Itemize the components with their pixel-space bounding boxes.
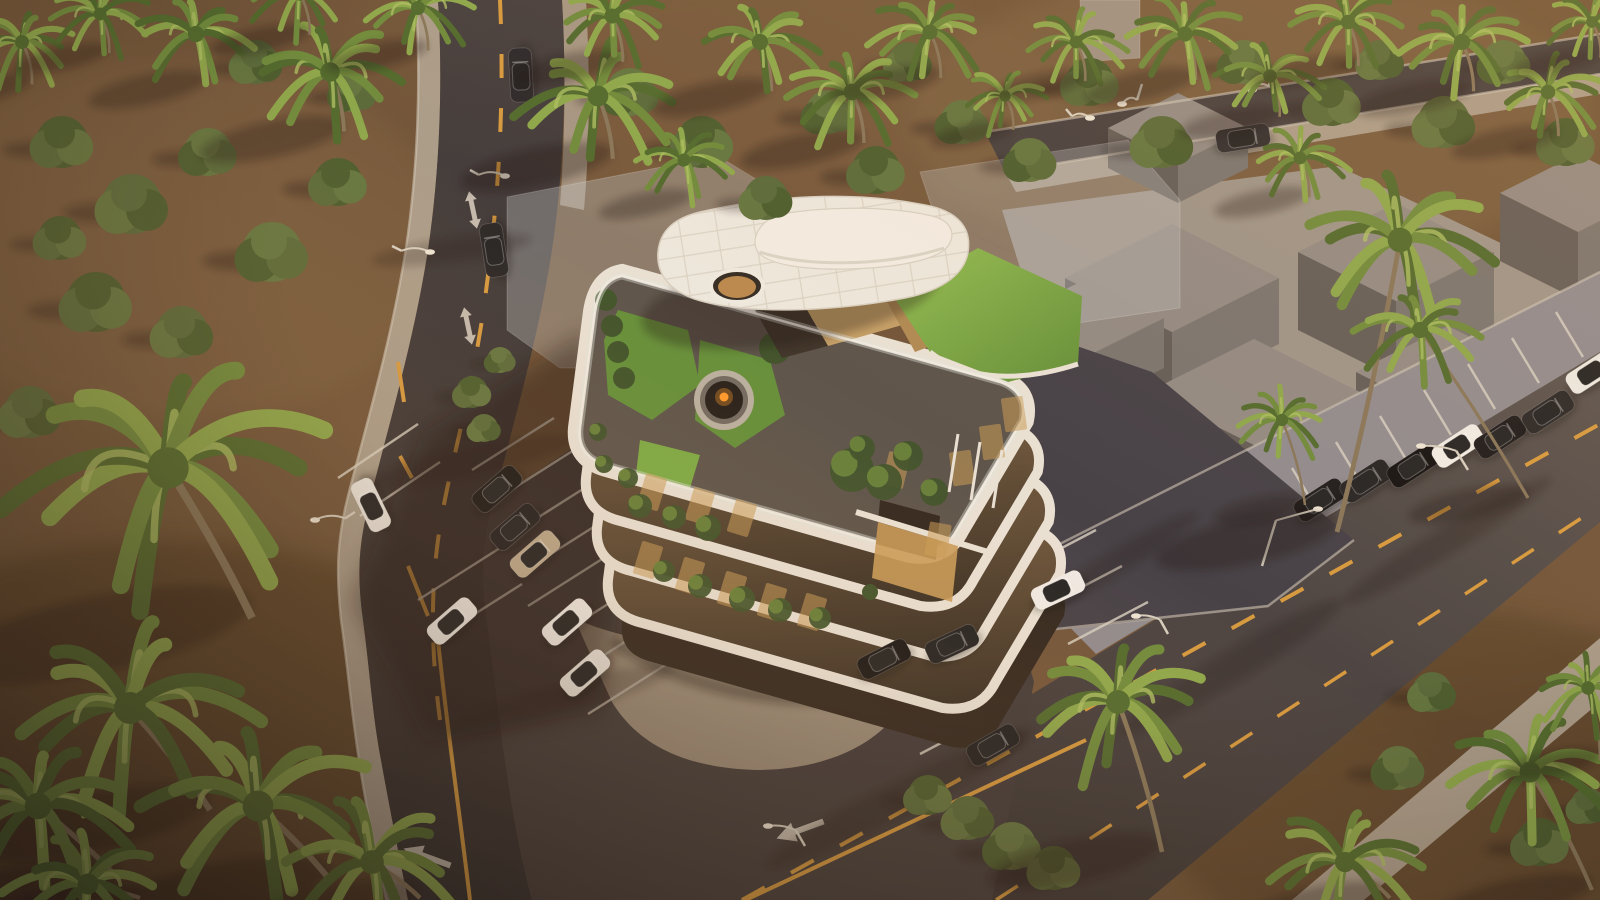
architectural-rendering: [0, 0, 1600, 900]
aerial-scene: [0, 0, 1600, 900]
lighting-overlay: [0, 0, 1600, 900]
